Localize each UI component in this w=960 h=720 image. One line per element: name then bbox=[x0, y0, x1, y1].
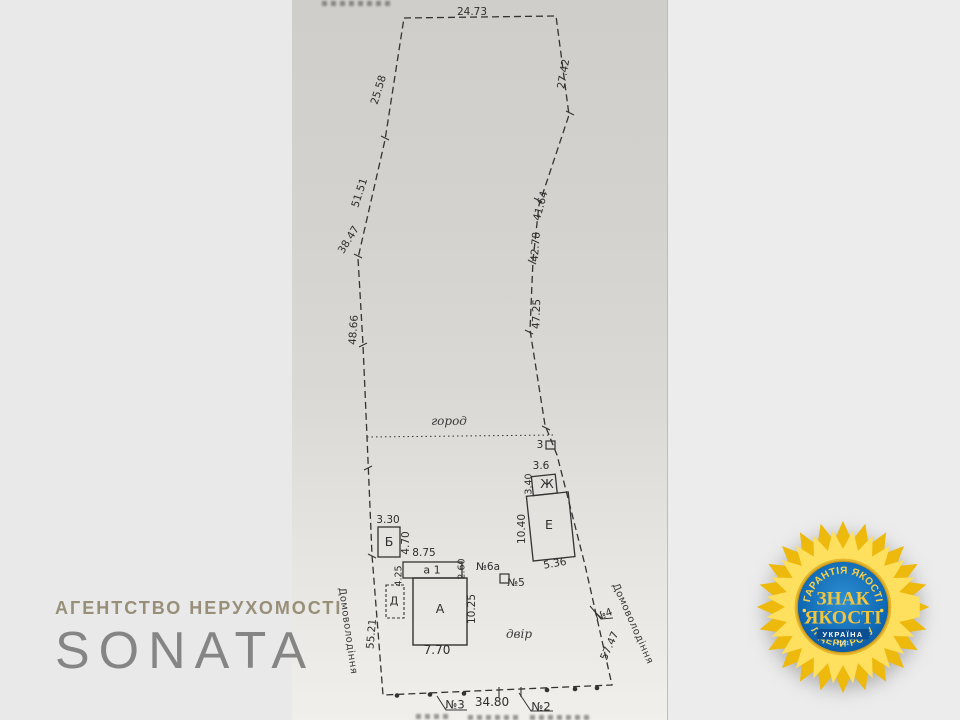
garden-divider-line bbox=[367, 435, 556, 437]
building-a1-height: 2.60 bbox=[457, 558, 467, 579]
badge-year: 2021 bbox=[837, 641, 850, 647]
measure-left-4: 48.66 bbox=[348, 315, 361, 346]
badge-country: УКРАЇНА bbox=[822, 630, 863, 639]
quality-badge: ГАРАНТІЯ ЯКОСТІ ЛІДЕРИ РОКУ ЗНАК ЯКОСТІ … bbox=[755, 519, 931, 695]
building-b-height: 4.70 bbox=[401, 531, 412, 554]
badge-title-1: ЗНАК bbox=[816, 588, 869, 609]
agency-watermark: АГЕНТСТВО НЕРУХОМОСТІ SONATA bbox=[55, 598, 345, 681]
point-6a-label: №6а bbox=[476, 562, 500, 573]
measure-right-3: 42.78 bbox=[530, 232, 543, 263]
point-2-label: №2 bbox=[531, 701, 550, 713]
building-a1-width: 8.75 bbox=[412, 548, 435, 559]
structure-z-square bbox=[546, 441, 555, 449]
measure-right-4: 47.25 bbox=[531, 299, 543, 329]
building-a-height: 10.25 bbox=[467, 594, 478, 624]
point-5-label: №5 bbox=[507, 578, 525, 589]
point-3-label: №3 bbox=[445, 699, 464, 711]
building-a-label: А bbox=[436, 603, 445, 616]
plot-boundary bbox=[358, 16, 612, 695]
building-zh-label: Ж bbox=[540, 478, 553, 491]
building-e-height: 10.40 bbox=[517, 514, 528, 544]
garden-label: город bbox=[431, 415, 467, 427]
building-b-label: Б bbox=[385, 536, 394, 549]
agency-tagline: АГЕНТСТВО НЕРУХОМОСТІ bbox=[55, 598, 345, 619]
measure-left-5: 55.21 bbox=[365, 619, 378, 650]
building-d-label: Д bbox=[390, 596, 399, 607]
building-b-width: 3.30 bbox=[376, 515, 399, 526]
building-a1-label: а 1 bbox=[423, 565, 440, 576]
listing-image: 24.73 25.58 51.51 38.47 48.66 55.21 27.4… bbox=[0, 0, 960, 720]
measure-bottom: 34.80 bbox=[475, 696, 509, 708]
building-a-width: 7.70 bbox=[424, 644, 451, 656]
building-zh-width: 3.6 bbox=[533, 461, 550, 472]
building-e-label: Е bbox=[545, 519, 553, 532]
structure-z-label: 3 bbox=[537, 440, 544, 451]
badge-title-2: ЯКОСТІ bbox=[804, 608, 881, 629]
yard-label: двір bbox=[506, 628, 532, 640]
measure-top: 24.73 bbox=[457, 7, 487, 18]
building-zh-height: 3.40 bbox=[524, 473, 534, 494]
building-a1-left-side: 4.25 bbox=[394, 565, 404, 586]
agency-logo-text: SONATA bbox=[55, 621, 345, 681]
